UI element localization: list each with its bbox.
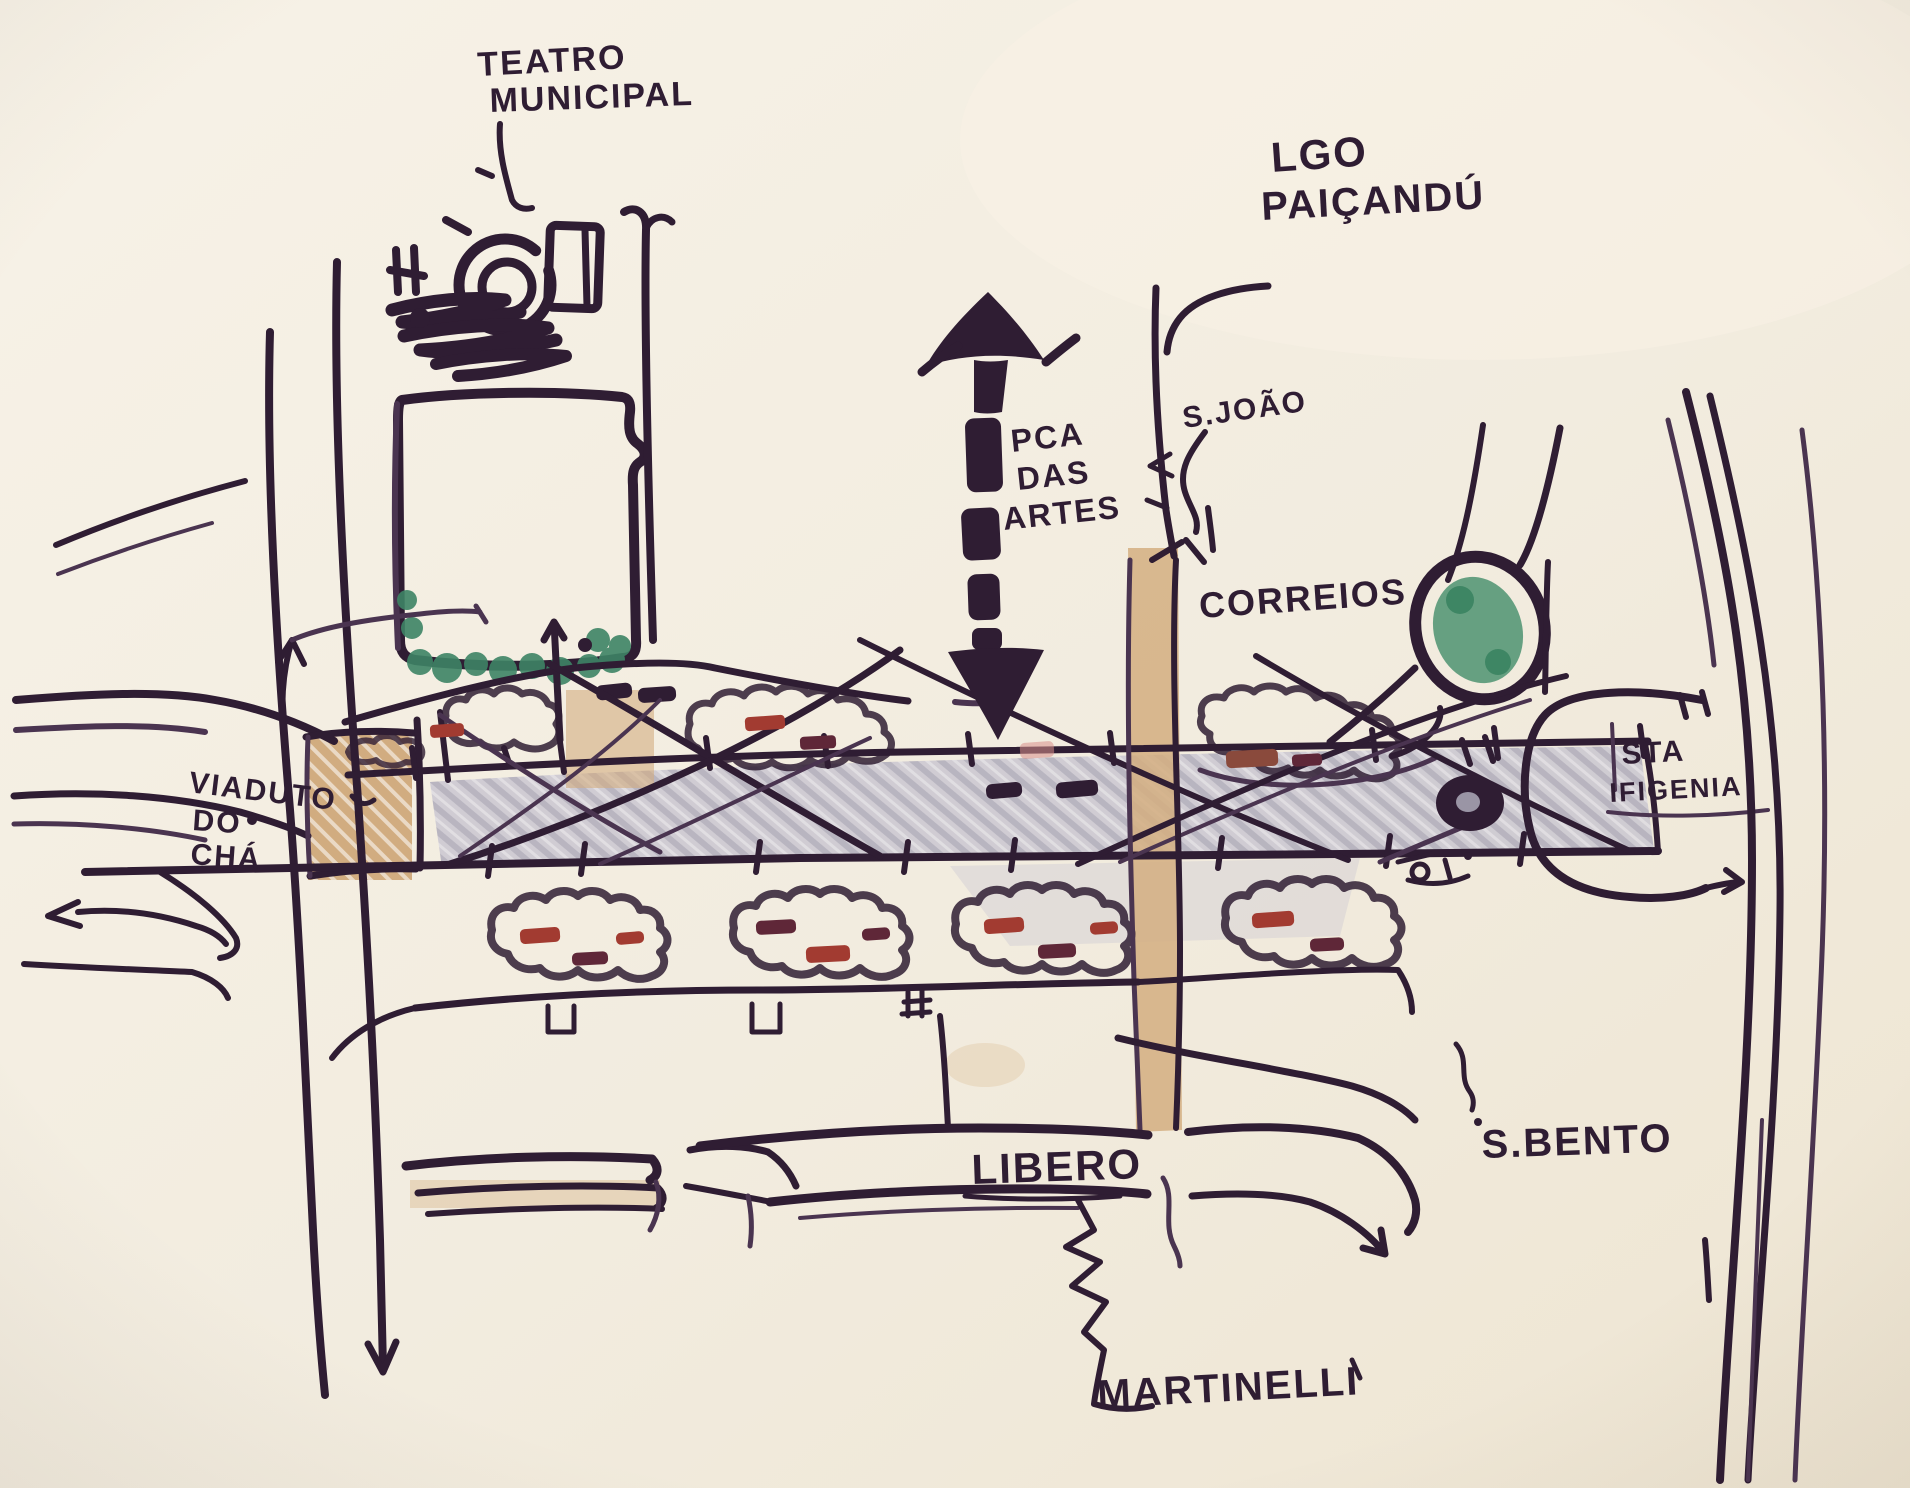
viaduto-do-cha-label-2: DO: [192, 804, 243, 840]
pca-das-artes-label: PCA: [1009, 415, 1086, 458]
lgo-paicandu-label: LGO: [1269, 127, 1369, 181]
teatro-municipal-label-2: MUNICIPAL: [489, 75, 695, 120]
sketch-canvas: TEATRO MUNICIPAL LGO PAIÇANDÚ PCA DAS AR…: [0, 0, 1910, 1488]
viaduto-do-cha-label-3: CHÁ: [190, 837, 263, 876]
sta-ifigenia-label: STA: [1621, 735, 1686, 771]
sketch-page: TEATRO MUNICIPAL LGO PAIÇANDÚ PCA DAS AR…: [0, 0, 1910, 1488]
pca-das-artes-label-2: DAS: [1015, 453, 1092, 496]
libero-label: LIBERO: [971, 1140, 1143, 1193]
sbento-label: S.BENTO: [1481, 1116, 1673, 1167]
